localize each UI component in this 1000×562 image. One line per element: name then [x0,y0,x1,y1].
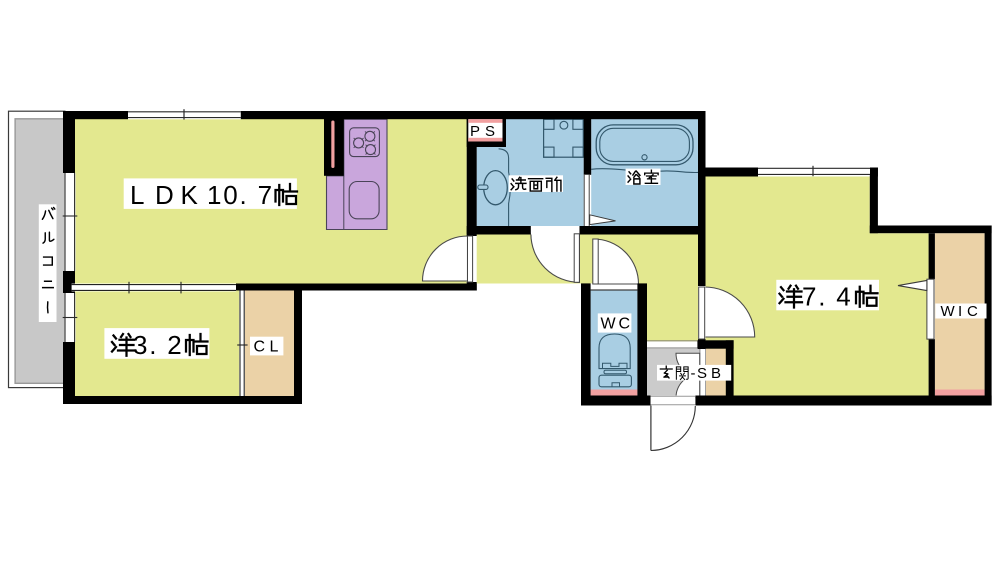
svg-text:10. 7: 10. 7 [207,180,274,210]
svg-text:D: D [155,180,174,210]
svg-text:-: - [691,365,696,382]
svg-text:P: P [470,123,480,140]
svg-text:K: K [181,180,199,210]
svg-text:7. 4: 7. 4 [802,282,853,312]
svg-text:C: C [619,316,631,333]
svg-text:L: L [130,180,144,210]
svg-text:B: B [711,365,721,382]
svg-text:3. 2: 3. 2 [133,330,184,360]
svg-text:S: S [485,123,495,140]
svg-text:L: L [270,339,279,356]
svg-text:W: W [941,303,956,320]
svg-text:W: W [601,316,617,333]
svg-text:S: S [697,365,707,382]
svg-text:C: C [254,339,266,356]
svg-text:C: C [967,303,978,320]
svg-text:I: I [958,303,962,320]
